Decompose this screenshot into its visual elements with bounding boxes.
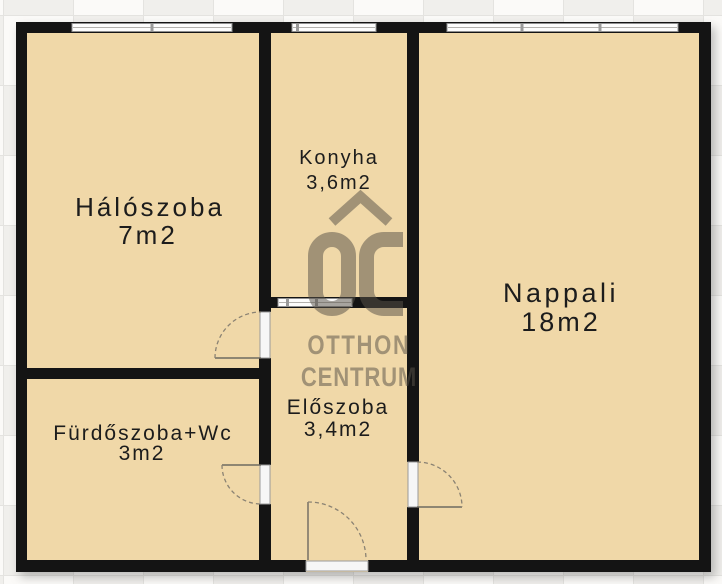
area-nappali: 18m2 xyxy=(521,307,601,337)
wall-haloszoba-furdoszoba xyxy=(16,368,271,379)
door-jamb-furdoszoba xyxy=(260,465,270,504)
area-eloszoba: 3,4m2 xyxy=(304,418,372,441)
area-haloszoba: 7m2 xyxy=(118,220,178,250)
wall-outer-right xyxy=(699,22,711,572)
wall-outer-bottom-left xyxy=(16,560,306,572)
wall-outer-bottom-right xyxy=(368,560,711,572)
wall-konyha-nappali xyxy=(407,33,419,462)
area-furdoszoba: 3m2 xyxy=(119,442,166,465)
floorplan-canvas: OTTHON CENTRUM Hálószoba 7m2 Konyha 3,6m… xyxy=(0,0,722,584)
window-konyha xyxy=(292,24,376,32)
window-haloszoba xyxy=(72,24,232,32)
wall-outer-left xyxy=(16,22,27,572)
wall-haloszoba-konyha xyxy=(259,33,271,312)
door-jamb-entry xyxy=(306,561,368,571)
door-jamb-nappali xyxy=(408,462,418,507)
wall-eloszoba-left-low xyxy=(259,504,271,560)
window-nappali xyxy=(447,24,678,32)
wall-eloszoba-nappali-low xyxy=(407,507,419,560)
label-haloszoba: Hálószoba xyxy=(75,192,225,222)
label-eloszoba: Előszoba xyxy=(287,396,389,419)
watermark-line2: CENTRUM xyxy=(301,363,417,393)
label-nappali: Nappali xyxy=(503,278,619,308)
watermark-line1: OTTHON xyxy=(307,331,410,361)
door-jamb-haloszoba xyxy=(260,312,270,358)
label-konyha: Konyha xyxy=(299,147,379,169)
area-konyha: 3,6m2 xyxy=(306,172,372,194)
